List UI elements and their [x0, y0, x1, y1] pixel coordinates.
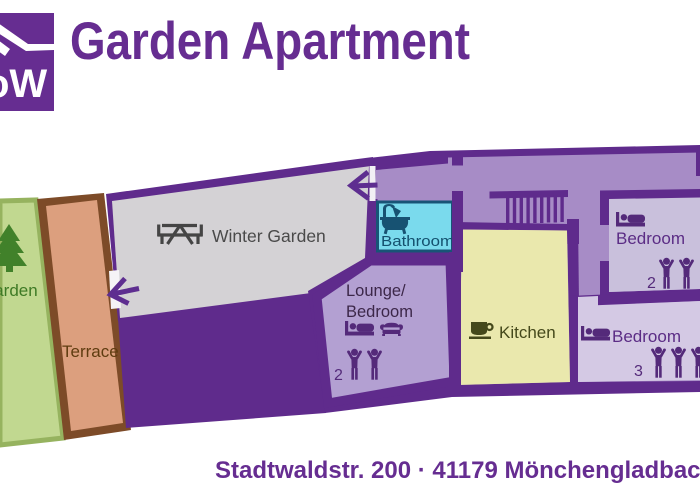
svg-text:Winter Garden: Winter Garden — [212, 226, 326, 246]
svg-text:oW: oW — [0, 62, 47, 106]
svg-text:Terrace: Terrace — [62, 342, 119, 361]
svg-text:Kitchen: Kitchen — [499, 323, 556, 342]
svg-text:Bathroom: Bathroom — [381, 234, 454, 250]
svg-text:Lounge/: Lounge/ — [346, 282, 406, 300]
svg-text:Bedroom: Bedroom — [346, 303, 413, 321]
svg-text:Garden Apartment: Garden Apartment — [70, 12, 470, 71]
svg-text:3: 3 — [634, 363, 643, 380]
svg-text:Garden: Garden — [0, 281, 38, 300]
svg-text:2: 2 — [334, 367, 343, 384]
svg-text:Bedroom: Bedroom — [616, 229, 685, 248]
svg-text:Stadtwaldstr. 200 · 41179 Mönc: Stadtwaldstr. 200 · 41179 Mönchengladbac… — [215, 457, 700, 484]
svg-text:Bedroom: Bedroom — [612, 327, 681, 346]
svg-text:2: 2 — [647, 275, 656, 292]
